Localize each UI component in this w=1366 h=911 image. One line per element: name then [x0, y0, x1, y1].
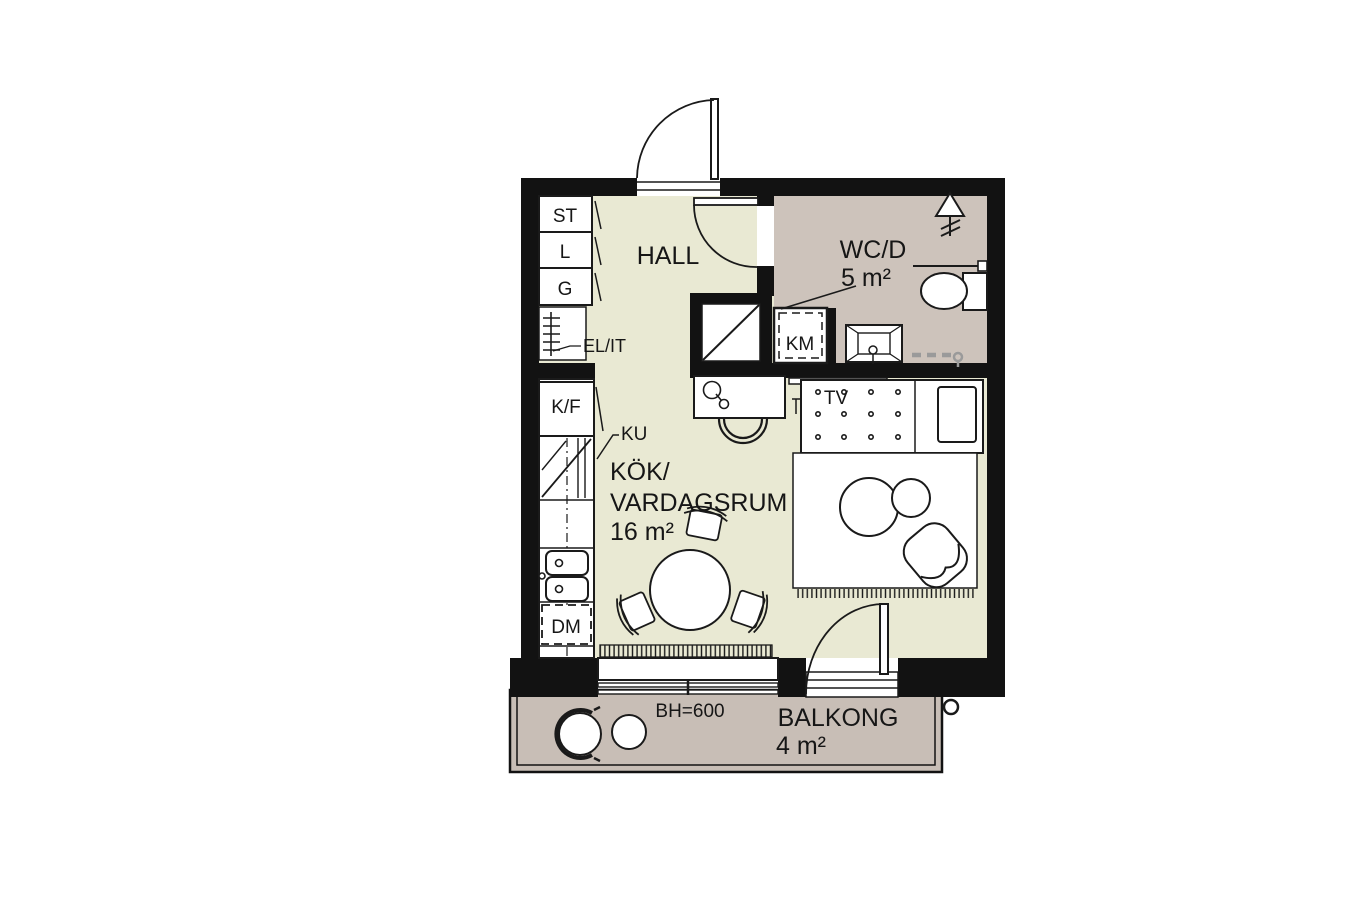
coffee-table-large [840, 478, 898, 536]
wall-hall-kitchen-stub [521, 363, 595, 378]
wall-washer-niche-stub [827, 308, 836, 363]
label-balcony-area: 4 m² [776, 732, 826, 760]
coffee-table-small [892, 479, 930, 517]
entrance-door-swing [637, 100, 714, 178]
window [598, 658, 778, 695]
electrical-cabinet [539, 307, 586, 360]
rug-fringe [795, 589, 976, 598]
label-washer: KM [786, 334, 815, 355]
label-wc: WC/D [840, 236, 907, 264]
label-closet-g: G [558, 279, 573, 300]
drainpipe [944, 700, 958, 714]
label-closet-l: L [560, 242, 571, 263]
desk [694, 376, 785, 418]
wall-left [521, 178, 539, 658]
toilet-bowl [921, 273, 967, 309]
label-kitchen-line1: KÖK/ [610, 458, 670, 486]
floor-plan-drawing: ST L G EL/IT HALL WC/D 5 m² KM K/F KU KÖ… [0, 0, 1366, 911]
wall-bottom-left-pier [510, 658, 598, 697]
tv-mount-right [838, 370, 844, 377]
bathroom-sink [846, 325, 902, 364]
label-fridge-freezer: K/F [551, 397, 581, 418]
label-closet-st: ST [553, 206, 578, 227]
dining-table [650, 550, 730, 630]
wc-door-leaf [694, 198, 758, 205]
wall-bottom-right-pier [898, 658, 1005, 697]
tv-mount-left [825, 370, 831, 377]
wall-right [987, 178, 1005, 697]
shaft [702, 304, 760, 361]
label-balcony: BALKONG [778, 704, 899, 732]
radiator [600, 645, 772, 657]
entrance-door-leaf [711, 99, 718, 179]
faucet [539, 573, 545, 579]
wall-hall-wc-top [757, 196, 774, 206]
label-wc-area: 5 m² [841, 264, 891, 292]
label-dishwasher: DM [551, 617, 581, 638]
bed [792, 380, 983, 453]
pillow [938, 387, 976, 442]
label-tv: TV [824, 388, 849, 409]
balcony-door-leaf [880, 604, 888, 674]
label-cooktop: KU [621, 424, 647, 445]
entrance-door [637, 99, 720, 196]
label-kitchen-area: 16 m² [610, 518, 674, 546]
wall-hall-wc-bottom [757, 266, 774, 296]
label-el-it: EL/IT [583, 336, 626, 356]
wall-top [521, 178, 1005, 196]
label-sill-height: BH=600 [655, 701, 724, 722]
label-kitchen-line2: VARDAGSRUM [610, 489, 787, 517]
wall-bottom-mid [778, 658, 806, 697]
floor-plan-page: ST L G EL/IT HALL WC/D 5 m² KM K/F KU KÖ… [0, 0, 1366, 911]
label-hall: HALL [637, 242, 700, 270]
balcony-table [612, 715, 646, 749]
